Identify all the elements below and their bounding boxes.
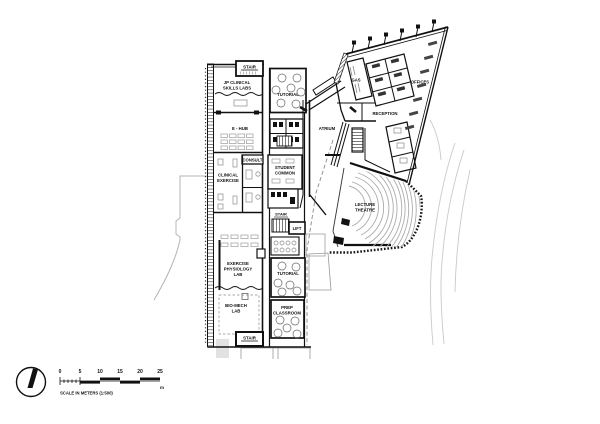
svg-text:20: 20 xyxy=(137,369,143,375)
svg-text:0: 0 xyxy=(59,369,62,375)
svg-text:TUTORIAL: TUTORIAL xyxy=(277,92,299,97)
svg-text:TUTORIAL: TUTORIAL xyxy=(277,271,299,276)
svg-text:BIO-MECH: BIO-MECH xyxy=(225,303,247,308)
svg-text:PREP: PREP xyxy=(281,305,293,310)
svg-text:STAIR: STAIR xyxy=(243,65,257,70)
svg-text:ATRIUM: ATRIUM xyxy=(319,126,336,131)
svg-text:THEATRE: THEATRE xyxy=(355,208,375,213)
svg-text:EXERCISE: EXERCISE xyxy=(217,178,239,183)
svg-text:SCALE IN METERS (1:500): SCALE IN METERS (1:500) xyxy=(60,391,113,396)
svg-text:STAIR: STAIR xyxy=(243,336,257,341)
svg-text:E - HUB: E - HUB xyxy=(232,126,248,131)
svg-text:RECEPTION: RECEPTION xyxy=(372,111,397,116)
svg-text:JP CLINICAL: JP CLINICAL xyxy=(224,80,251,85)
svg-text:CONSULT: CONSULT xyxy=(243,158,263,163)
svg-text:10: 10 xyxy=(97,369,103,375)
svg-text:STAIR: STAIR xyxy=(275,212,287,217)
svg-text:OFFICES: OFFICES xyxy=(411,80,429,85)
svg-text:LAB: LAB xyxy=(232,309,241,314)
svg-text:SKILLS LABS: SKILLS LABS xyxy=(223,86,251,91)
svg-text:GAS: GAS xyxy=(351,78,360,83)
svg-text:25: 25 xyxy=(157,369,163,375)
svg-text:m: m xyxy=(160,385,164,390)
svg-text:CLASSROOM: CLASSROOM xyxy=(273,311,301,316)
svg-text:STUDENT: STUDENT xyxy=(275,165,296,170)
svg-text:5: 5 xyxy=(79,369,82,375)
svg-text:CLINICAL: CLINICAL xyxy=(218,173,238,178)
svg-text:EXERCISE: EXERCISE xyxy=(227,261,249,266)
svg-text:LECTURE: LECTURE xyxy=(355,202,375,207)
svg-text:PHYSIOLOGY: PHYSIOLOGY xyxy=(224,267,253,272)
svg-text:LIFT: LIFT xyxy=(293,226,302,231)
svg-text:COMMON: COMMON xyxy=(275,171,295,176)
svg-text:15: 15 xyxy=(117,369,123,375)
svg-text:LAB: LAB xyxy=(234,272,243,277)
